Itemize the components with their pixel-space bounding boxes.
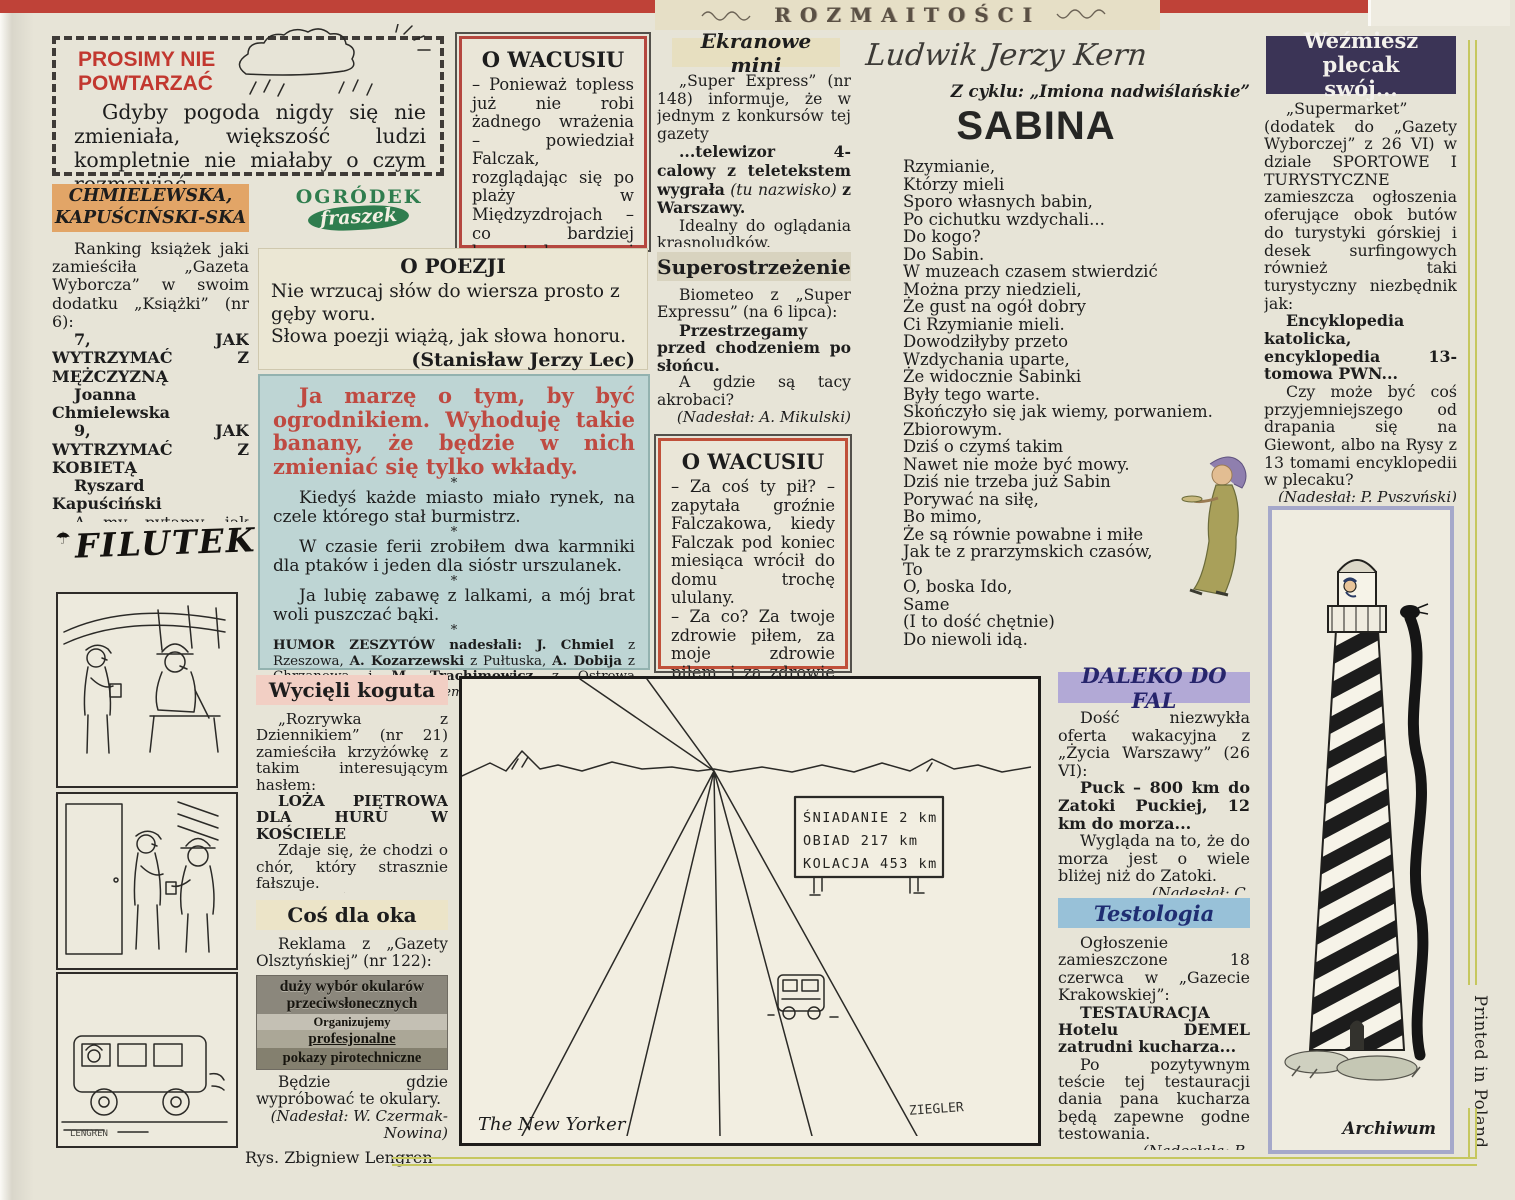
poem-author: Ludwik Jerzy Kern: [864, 38, 1208, 73]
daleko-credit: (Nadesłał: C. Kwaśniewski): [1058, 885, 1250, 895]
testologia-credit: (Nadesłała: B. Żurakowska): [1058, 1143, 1250, 1151]
superostrzezenie-p1: Biometeo z „Super Expressu” (na 6 lipca)…: [657, 287, 851, 322]
ekranowe-mini-heading: Ekranowe mini: [672, 38, 840, 67]
ad-line-3: profesjonalne: [257, 1030, 447, 1049]
wezmiesz-credit: (Nadesłał: P. Pyszyński): [1264, 489, 1457, 502]
road-sign-line1: ŚNIADANIE 2 km: [803, 808, 938, 826]
prosimy-nie-powtarzac-box: PROSIMY NIE POWTARZAĆ Gdyby pogoda nigdy…: [52, 36, 444, 176]
wezmiesz-p1: „Supermarket” (dodatek do „Gazety Wyborc…: [1264, 100, 1457, 312]
o-wacusiu-2-heading: O WACUSIU: [671, 449, 835, 474]
ogrodek-fraszek-logo: OGRÓDEK fraszek: [284, 186, 434, 246]
ekranowe-mini-body: „Super Express” (nr 148) informuje, że w…: [657, 73, 851, 247]
superostrzezenie-p2: Przestrzegamy przed chodzeniem po słońcu…: [657, 322, 851, 374]
daleko-p2: Puck – 800 km do Zatoki Puckiej, 12 km d…: [1058, 779, 1250, 832]
ranking-item-1: 7, JAK WYTRZYMAĆ Z MĘŻCZYZNĄ: [52, 331, 249, 386]
prosimy-heading-line2: POWTARZAĆ: [78, 72, 215, 96]
ekranowe-p3: Idealny do oglądania krasnoludków.: [657, 218, 851, 247]
testologia-p2: TESTAURACJA Hotelu DEMEL zatrudni kuchar…: [1058, 1004, 1250, 1056]
olive-rule-vertical: [1468, 40, 1477, 985]
olive-rule-elbow: [1468, 1108, 1477, 1158]
ranking-item-2: 9, JAK WYTRZYMAĆ Z KOBIETĄ: [52, 422, 249, 477]
chmielewska-intro: Ranking książek jaki zamieściła „Gazeta …: [52, 240, 249, 331]
superostrzezenie-body: Biometeo z „Super Expressu” (na 6 lipca)…: [657, 287, 851, 433]
daleko-p3: Wygląda na to, że do morza jest o wiele …: [1058, 832, 1250, 885]
daleko-p1: Dość niezwykła oferta wakacyjna z „Życia…: [1058, 709, 1250, 779]
o-wacusiu-2-p1: – Za coś ty pił? – zapytała groźnie Falc…: [671, 478, 835, 608]
wycieli-koguta-heading: Wycięli koguta: [256, 675, 448, 705]
wezmiesz-heading-line1: Weźmiesz plecak: [1266, 29, 1456, 77]
testologia-heading: Testologia: [1058, 898, 1250, 928]
filutek-title: FILUTEK: [74, 520, 257, 565]
cos-dla-oka-heading: Coś dla oka: [256, 900, 448, 930]
prosimy-heading-line1: PROSIMY NIE: [78, 48, 215, 72]
o-poezji-line2: Słowa poezji wiążą, jak słowa honoru.: [271, 326, 635, 349]
chmielewska-heading: CHMIELEWSKA, KAPUŚCIŃSKI-SKA: [52, 184, 249, 232]
page-title: ROZMAITOŚCI: [774, 3, 1041, 27]
page-corner-block: [1368, 0, 1510, 26]
comic-panel-1: [56, 592, 238, 788]
wycieli-p3: Zdaje się, że chodzi o chór, który stras…: [256, 842, 448, 891]
wezmiesz-heading-line2: swój...: [1324, 77, 1397, 101]
testologia-body: Ogłoszenie zamieszczone 18 czerwca w „Ga…: [1058, 934, 1250, 1150]
comic-panel-2-drawing: [58, 794, 231, 963]
ad-line-4: pokazy pirotechniczne: [257, 1048, 447, 1068]
comic-panel-3: LENGREN: [56, 972, 238, 1148]
superostrzezenie-p3: A gdzie są tacy akrobaci?: [657, 374, 851, 409]
o-poezji-heading: O POEZJI: [271, 254, 635, 278]
wave-ornament-left: [700, 8, 760, 22]
wycieli-p1: „Rozrywka z Dziennikiem” (nr 21) zamieśc…: [256, 711, 448, 793]
o-poezji-credit: (Stanisław Jerzy Lec): [271, 349, 635, 371]
new-yorker-cartoon: ŚNIADANIE 2 km OBIAD 217 km KOLACJA 453 …: [459, 676, 1041, 1146]
humor-lead: Ja marzę o tym, by być ogrodnikiem. Wyho…: [273, 384, 635, 478]
testologia-p3: Po pozytywnym teście tej testauracji dan…: [1058, 1056, 1250, 1143]
lighthouse-illustration-frame: Archiwum: [1268, 506, 1454, 1154]
cos-dla-oka-body: Reklama z „Gazety Olsztyńskiej” (nr 122)…: [256, 936, 448, 1146]
ad-line-1: duży wybór okularów przeciwsłonecznych: [257, 976, 447, 1014]
comic-panel-3-drawing: LENGREN: [58, 974, 231, 1141]
cos-p1: Reklama z „Gazety Olsztyńskiej” (nr 122)…: [256, 936, 448, 971]
wezmiesz-plecak-heading: Weźmiesz plecak swój...: [1266, 36, 1456, 94]
ranking-author-1: Joanna Chmielewska: [52, 386, 249, 422]
poem-title: SABINA: [866, 104, 1206, 149]
daleko-do-fal-heading: DALEKO DO FAL: [1058, 672, 1250, 703]
comic-panel-2: [56, 792, 238, 970]
o-poezji-box: O POEZJI Nie wrzucaj słów do wiersza pro…: [258, 248, 648, 370]
sabine-woman-illustration: [1180, 452, 1258, 597]
prosimy-text: Gdyby pogoda nigdy się nie zmieniała, wi…: [74, 100, 426, 196]
wezmiesz-plecak-body: „Supermarket” (dodatek do „Gazety Wyborc…: [1264, 100, 1457, 502]
wezmiesz-p3: Czy może być coś przyjemniejszego od dra…: [1264, 383, 1457, 489]
superostrzezenie-credit: (Nadesłał: A. Mikulski): [657, 409, 851, 426]
wycieli-p2: LOŻA PIĘTROWA DLA HURU W KOŚCIELE: [256, 793, 448, 842]
wezmiesz-p2: Encyklopedia katolicka, encyklopedia 13-…: [1264, 312, 1457, 383]
road-sign-line2: OBIAD 217 km: [803, 833, 919, 849]
masthead: ROZMAITOŚCI: [655, 0, 1160, 30]
rain-cloud-sketch: [226, 24, 436, 102]
ekranowe-p2: ...telewizor 4-calowy z teletekstem wygr…: [657, 143, 851, 217]
ad-line-2: Organizujemy: [257, 1014, 447, 1030]
archiwum-caption: Archiwum: [1343, 1119, 1436, 1138]
superostrzezenie-heading: Superostrzeżenie: [657, 252, 851, 281]
chmielewska-heading-line1: CHMIELEWSKA,: [69, 186, 232, 208]
chmielewska-heading-line2: KAPUŚCIŃSKI-SKA: [55, 208, 246, 230]
humor-item-3: Ja lubię zabawę z lalkami, a mój brat wo…: [273, 587, 635, 625]
olive-rule-horizontal: [392, 1157, 1477, 1166]
umbrella-icon: ☂: [55, 529, 73, 550]
ranking-author-2: Ryszard Kapuściński: [52, 477, 249, 513]
chmielewska-body: Ranking książek jaki zamieściła „Gazeta …: [52, 240, 249, 522]
cartoon-drawing: ŚNIADANIE 2 km OBIAD 217 km KOLACJA 453 …: [462, 679, 1031, 1136]
newspaper-page: ROZMAITOŚCI PROSIMY NIE POWTARZAĆ Gdyby …: [0, 0, 1515, 1200]
ogrodek-logo-top: OGRÓDEK: [284, 186, 434, 208]
humor-item-1: Kiedyś każde miasto miało rynek, na czel…: [273, 489, 635, 527]
o-wacusiu-1-heading: O WACUSIU: [472, 47, 634, 72]
page-gutter: [0, 0, 34, 1200]
o-poezji-line1: Nie wrzucaj słów do wiersza prosto z gęb…: [271, 281, 635, 326]
wave-ornament-right: [1055, 8, 1115, 22]
wycieli-koguta-body: „Rozrywka z Dziennikiem” (nr 21) zamieśc…: [256, 711, 448, 893]
daleko-do-fal-body: Dość niezwykła oferta wakacyjna z „Życia…: [1058, 709, 1250, 895]
cos-p2: Będzie gdzie wypróbować te okulary.: [256, 1074, 448, 1109]
newspaper-ad-clipping: duży wybór okularów przeciwsłonecznych O…: [256, 975, 448, 1070]
o-wacusiu-box-2: O WACUSIU – Za coś ty pił? – zapytała gr…: [658, 438, 848, 669]
poem-cycle: Z cyklu: „Imiona nadwiślańskie”: [930, 82, 1250, 101]
humor-item-2: W czasie ferii zrobiłem dwa karmniki dla…: [273, 538, 635, 576]
comic-panel-1-drawing: [58, 594, 231, 781]
star-separator-4: *: [273, 625, 635, 636]
cos-credit: (Nadesłał: W. Czermak-Nowina): [256, 1108, 448, 1142]
filutek-logo: ☂ FILUTEK: [55, 521, 243, 587]
testologia-p1: Ogłoszenie zamieszczone 18 czerwca w „Ga…: [1058, 934, 1250, 1004]
ogrodek-logo-bottom: fraszek: [308, 203, 410, 232]
prosimy-body: Gdyby pogoda nigdy się nie zmieniała, wi…: [74, 100, 426, 196]
humor-zeszytow-box: Ja marzę o tym, by być ogrodnikiem. Wyho…: [258, 374, 650, 670]
prosimy-heading: PROSIMY NIE POWTARZAĆ: [78, 48, 215, 96]
ekranowe-p1: „Super Express” (nr 148) informuje, że w…: [657, 73, 851, 143]
road-sign-line3: KOLACJA 453 km: [803, 856, 938, 872]
lengren-signature: LENGREN: [70, 1129, 108, 1139]
lighthouse-drawing: [1272, 510, 1442, 1110]
o-wacusiu-box-1: O WACUSIU – Ponieważ topless już nie rob…: [459, 36, 647, 248]
cartoon-source-caption: The New Yorker: [478, 1114, 625, 1135]
